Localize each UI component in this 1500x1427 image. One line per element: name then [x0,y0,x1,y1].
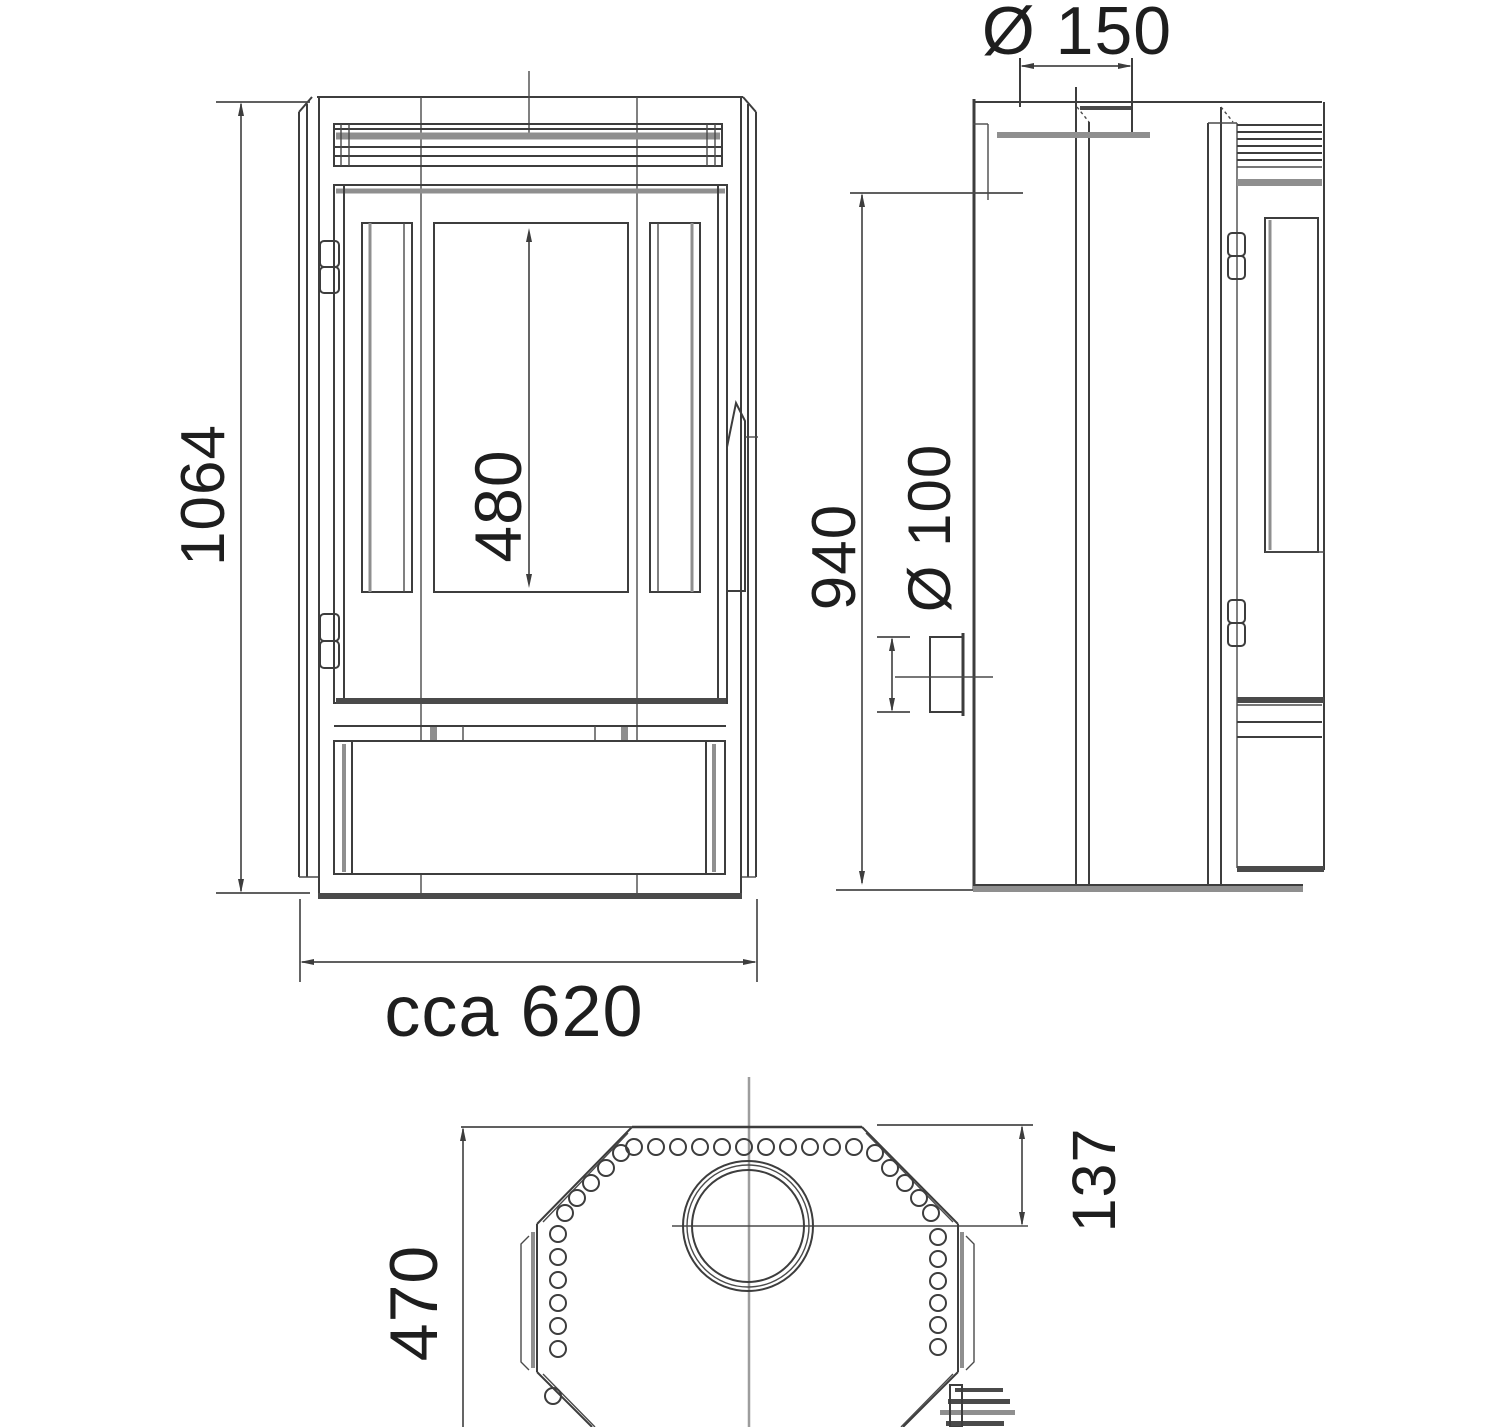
drawing-canvas: 1064 480 cca 620 [0,0,1500,1427]
plinth-band [334,726,726,741]
dim-overall-width: cca 620 [300,899,757,1052]
outlet-diameter-label: Ø 100 [896,444,963,612]
dim-glass-height: 480 [461,228,535,588]
front-right-cheek [741,97,756,877]
dim-flue-diameter: Ø 150 [982,0,1172,69]
flue-diameter-label: Ø 150 [982,0,1172,69]
dim-outlet-diameter: Ø 100 [877,444,963,712]
door-glass-right [650,223,700,592]
dim-top-depth: 470 [376,1127,632,1427]
door-handle [727,403,758,591]
overall-width-label: cca 620 [384,972,643,1052]
side-front-face [1228,102,1325,872]
door-glass-left [362,223,412,592]
technical-drawing: 1064 480 cca 620 [0,0,1500,1427]
flue-collar [997,58,1150,138]
stove-door [320,185,758,704]
rear-flue-outlet [895,633,993,716]
dim-flue-offset: 137 [877,1125,1128,1232]
overall-height-label: 1064 [169,424,238,566]
top-view-handle-detail [940,1385,1015,1427]
dim-overall-height: 1064 [169,102,310,893]
door-hinge-top [320,241,339,293]
top-depth-label: 470 [376,1245,452,1361]
side-window [1265,218,1325,552]
flue-offset-label: 137 [1060,1128,1128,1233]
front-left-cheek [299,97,319,877]
vent-holes [545,1139,946,1404]
ventilation-grille [334,124,722,166]
ash-drawer [334,741,725,874]
side-height-label: 940 [800,504,869,610]
side-grille-slats [1237,125,1322,160]
door-hinge-bottom [320,614,339,668]
octagon-outline [521,1127,974,1427]
top-view [521,1077,1028,1427]
glass-height-label: 480 [461,449,535,562]
front-view-dimensions: 1064 480 cca 620 [169,102,757,1052]
